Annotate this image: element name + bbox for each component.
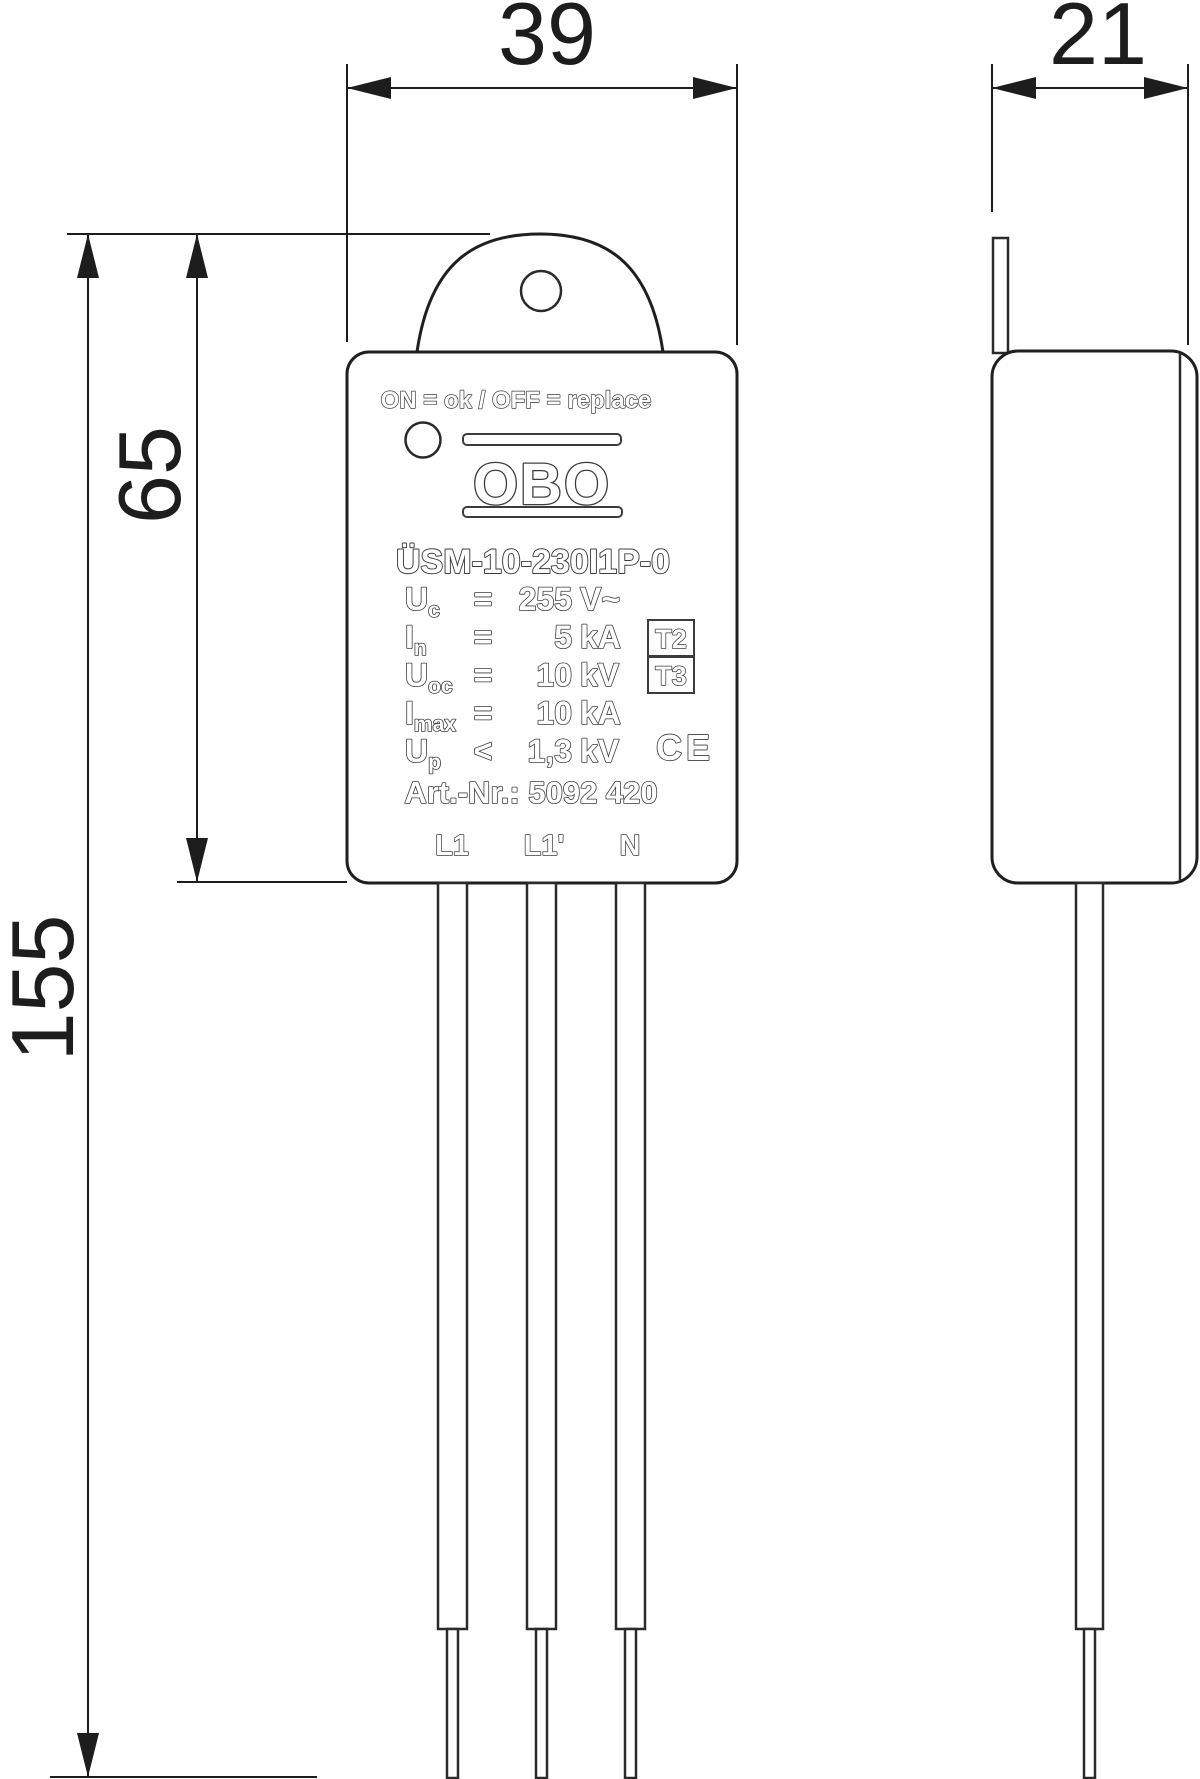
terminal-label-l1: L1 [435, 830, 469, 862]
spec-operator: < [474, 733, 493, 769]
type-class-badges: T2 T3 [648, 620, 694, 693]
mounting-hole [521, 271, 561, 311]
spec-operator: = [474, 695, 493, 731]
wire-bare-end [1084, 1629, 1095, 1778]
dimension-value-39: 39 [498, 0, 596, 83]
model-name: ÜSM-10-230I1P-0 [396, 543, 670, 581]
logo-bar-bottom [463, 507, 622, 517]
spec-value: 255 [519, 581, 572, 617]
arrow-left-icon [992, 77, 1036, 99]
badge-t2: T2 [655, 624, 687, 654]
spec-unit: V~ [580, 581, 620, 617]
spec-value: 10 [536, 657, 572, 693]
dimension-total-height: 155 [0, 234, 99, 1777]
arrow-right-icon [693, 77, 737, 99]
wire-l1p [527, 883, 556, 1778]
wire-bare-end [447, 1629, 458, 1778]
dimension-value-155: 155 [0, 915, 92, 1062]
terminal-label-n: N [620, 830, 641, 862]
dimension-side-depth: 21 [992, 0, 1188, 345]
badge-t3: T3 [655, 661, 687, 691]
wire-side [1076, 883, 1103, 1778]
dimension-value-21: 21 [1049, 0, 1147, 83]
spec-value: 1,3 [528, 733, 572, 769]
arrow-down-icon [186, 838, 208, 882]
dimension-value-65: 65 [100, 426, 199, 524]
spec-unit: kV [580, 657, 620, 693]
wire-insulation [616, 883, 645, 1629]
surge-device-dimension-drawing: 39 21 65 155 ON = o [0, 0, 1200, 1779]
wire-insulation [438, 883, 467, 1629]
ce-mark: CE [656, 727, 714, 768]
spec-unit: kV [580, 733, 620, 769]
technical-drawing-page: 39 21 65 155 ON = o [0, 0, 1200, 1779]
arrow-right-icon [1144, 77, 1188, 99]
led-indicator [406, 423, 441, 458]
spec-operator: = [474, 657, 493, 693]
wire-l1 [438, 883, 467, 1778]
wire-bare-end [536, 1629, 547, 1778]
spec-operator: = [474, 581, 493, 617]
spec-unit: kA [580, 695, 621, 731]
side-view [992, 238, 1197, 1778]
wire-bare-end [625, 1629, 636, 1778]
arrow-left-icon [347, 77, 391, 99]
wire-n [616, 883, 645, 1778]
article-number: Art.-Nr.: 5092 420 [404, 775, 657, 810]
wire-insulation [1076, 883, 1103, 1629]
arrow-up-icon [77, 234, 99, 278]
spec-value: 5 [554, 619, 572, 655]
front-view: ON = ok / OFF = replace OBO ÜSM-10-230I1… [347, 234, 737, 1778]
arrow-up-icon [186, 234, 208, 278]
spec-operator: = [474, 619, 493, 655]
side-housing [992, 351, 1197, 883]
terminal-label-l1p: L1' [524, 830, 565, 862]
arrow-down-icon [77, 1733, 99, 1777]
dimension-body-height: 65 [100, 234, 208, 882]
wire-insulation [527, 883, 556, 1629]
logo-bar-top [463, 434, 621, 445]
mounting-tab-side [993, 238, 1008, 353]
status-legend-text: ON = ok / OFF = replace [381, 387, 652, 414]
spec-value: 10 [536, 695, 572, 731]
spec-unit: kA [580, 619, 621, 655]
